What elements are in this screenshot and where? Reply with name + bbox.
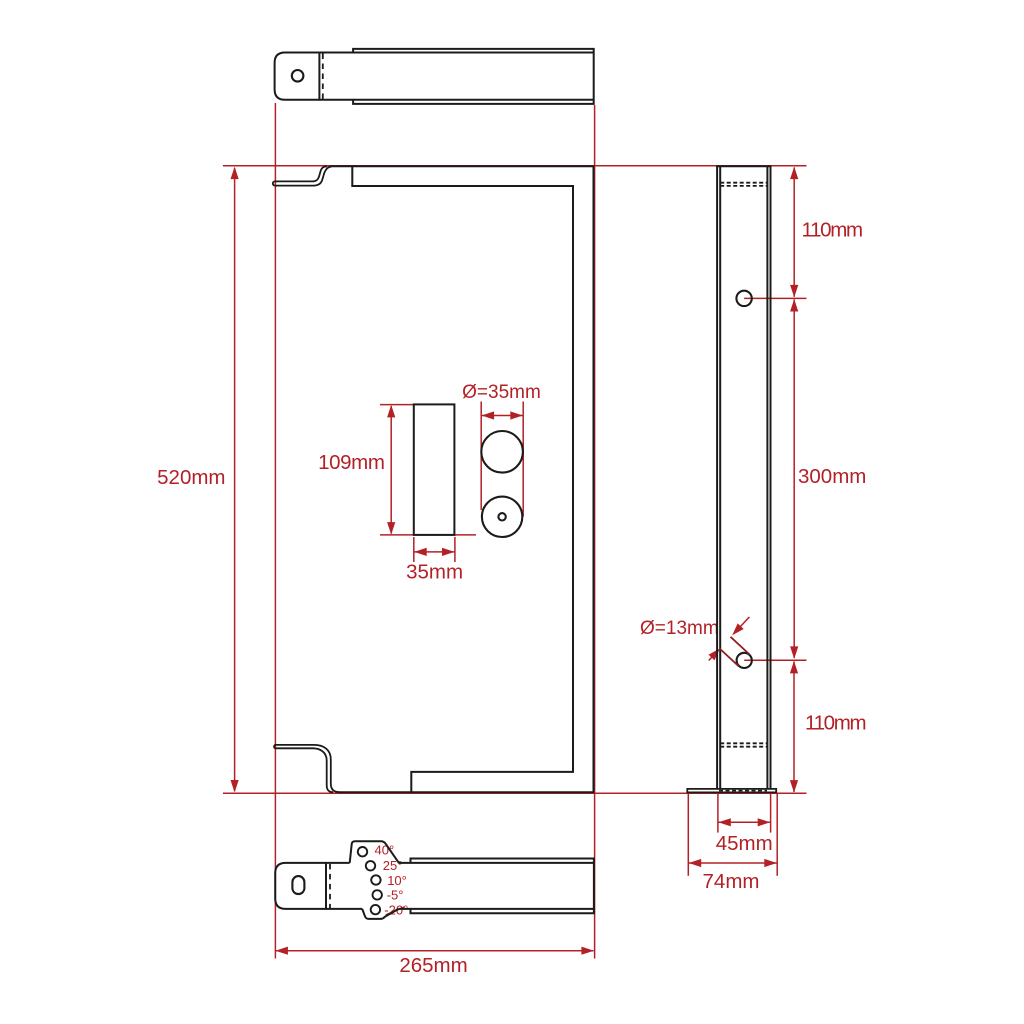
svg-text:-5°: -5° [387, 888, 404, 903]
svg-text:45mm: 45mm [716, 832, 773, 855]
svg-text:110mm: 110mm [802, 219, 863, 242]
svg-text:Ø=13mm: Ø=13mm [640, 618, 719, 639]
svg-text:300mm: 300mm [798, 465, 866, 488]
svg-text:74mm: 74mm [703, 870, 760, 893]
svg-text:25°: 25° [383, 858, 403, 873]
svg-text:265mm: 265mm [399, 954, 467, 977]
svg-text:109mm: 109mm [318, 451, 384, 474]
svg-text:10°: 10° [387, 873, 407, 888]
svg-text:110mm: 110mm [805, 712, 866, 735]
svg-text:520mm: 520mm [157, 466, 225, 489]
svg-text:35mm: 35mm [406, 560, 463, 583]
svg-text:40°: 40° [375, 842, 395, 857]
svg-text:Ø=35mm: Ø=35mm [462, 382, 541, 403]
